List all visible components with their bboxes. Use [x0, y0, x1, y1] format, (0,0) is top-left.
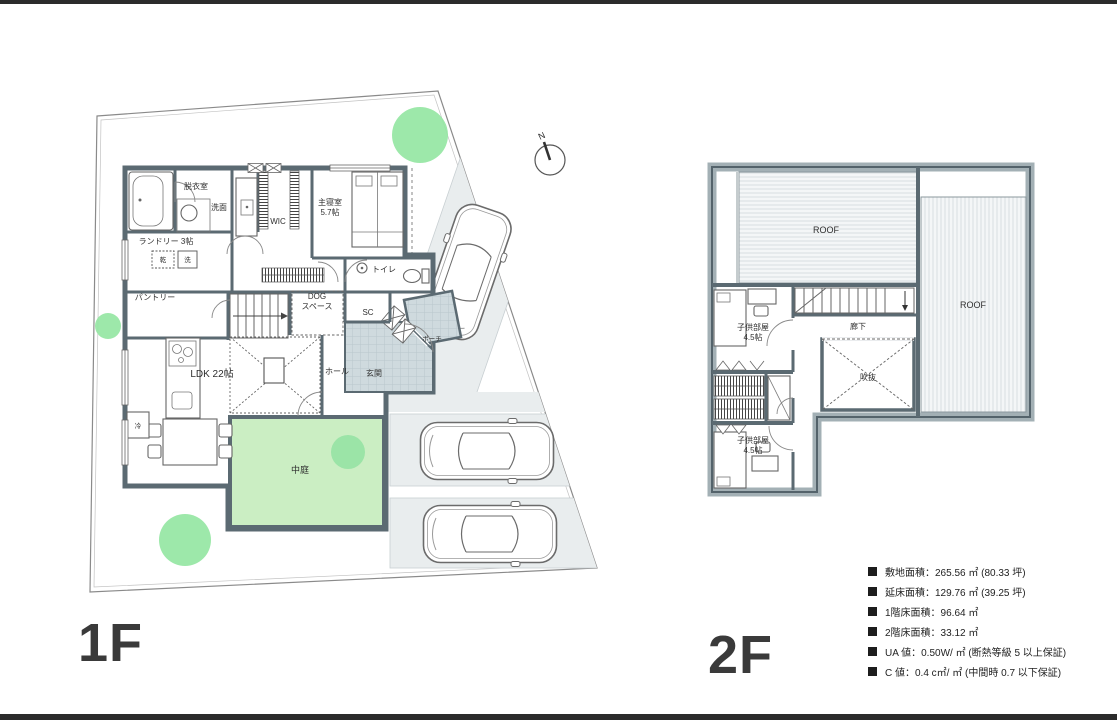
room-label-dog-2: スペース	[301, 302, 332, 311]
room-label-roof-left: ROOF	[813, 225, 840, 235]
spec-item: 1階床面積：96.64 ㎡	[868, 601, 1066, 621]
room-label-pantry: パントリー	[135, 293, 175, 302]
floorplan-page: 脱衣室 洗面 WIC 主寝室 5.7帖 ランドリー 3帖 乾 洗 パントリー D…	[0, 0, 1117, 720]
spec-item: C 値：0.4 c㎡/ ㎡ (中間時 0.7 以下保証)	[868, 661, 1066, 681]
wic-hanger-icon	[290, 171, 299, 229]
tree-icon	[392, 107, 448, 163]
washer-icon	[181, 205, 197, 221]
room-label-wic: WIC	[270, 217, 286, 226]
room-label-porch: ポーチ	[422, 335, 442, 343]
room-label-kids1: 子供部屋	[737, 322, 769, 332]
vanity-icon	[236, 178, 257, 236]
room-label-kids2-size: 4.5帖	[743, 445, 762, 455]
room-label-corridor: 廊下	[850, 321, 866, 331]
desk-icon	[748, 289, 776, 304]
room-label-hall: ホール	[325, 367, 349, 376]
room-label-laundry: ランドリー 3帖	[139, 236, 194, 246]
floor2-plan: ROOF ROOF 子供部屋 4.5帖 廊下 吹抜 子供部屋 4.5帖	[712, 167, 1030, 492]
room-label-dog-1: DOG	[308, 292, 326, 301]
room-label-courtyard: 中庭	[291, 464, 309, 475]
car-icon	[421, 419, 554, 484]
label-washer: 洗	[184, 255, 191, 264]
room-label-master-bedroom: 主寝室	[318, 197, 342, 207]
desk-icon	[752, 456, 778, 471]
tree-icon	[159, 514, 211, 566]
spec-item: 延床面積：129.76 ㎡ (39.25 坪)	[868, 581, 1066, 601]
tree-icon	[95, 313, 121, 339]
room-label-washroom: 洗面	[211, 202, 227, 212]
spec-item: 2階床面積：33.12 ㎡	[868, 621, 1066, 641]
room-label-void: 吹抜	[860, 372, 876, 382]
square-bullet-icon	[868, 667, 877, 676]
car-icon	[424, 502, 557, 567]
label-dryer: 乾	[160, 255, 167, 264]
bathtub-icon	[129, 172, 173, 230]
square-bullet-icon	[868, 587, 877, 596]
room-label-dressing: 脱衣室	[184, 181, 208, 191]
square-bullet-icon	[868, 607, 877, 616]
room-label-entrance: 玄関	[366, 368, 382, 378]
north-compass-icon: N	[535, 130, 565, 175]
square-bullet-icon	[868, 627, 877, 636]
floor2-title: 2F	[708, 624, 773, 686]
bed-icon	[714, 290, 746, 346]
spec-item: 敷地面積：265.56 ㎡ (80.33 坪)	[868, 561, 1066, 581]
tree-icon	[331, 435, 365, 469]
spec-list: 敷地面積：265.56 ㎡ (80.33 坪) 延床面積：129.76 ㎡ (3…	[868, 561, 1066, 681]
room-label-roof-right: ROOF	[960, 300, 987, 310]
wic-hanger-icon	[259, 171, 268, 229]
svg-text:N: N	[537, 130, 547, 142]
floor1-title: 1F	[78, 612, 143, 674]
floor1-plan: 脱衣室 洗面 WIC 主寝室 5.7帖 ランドリー 3帖 乾 洗 パントリー D…	[90, 91, 606, 592]
room-label-kids2: 子供部屋	[737, 435, 769, 445]
room-label-kids1-size: 4.5帖	[743, 332, 762, 342]
room-label-ldk: LDK 22帖	[190, 367, 233, 380]
square-bullet-icon	[868, 567, 877, 576]
label-fridge: 冷	[135, 421, 142, 430]
room-label-sc: SC	[362, 308, 373, 317]
spec-item: UA 値：0.50W/ ㎡ (断熱等級 5 以上保証)	[868, 641, 1066, 661]
room-label-toilet: トイレ	[372, 265, 396, 274]
square-bullet-icon	[868, 647, 877, 656]
bed-icon	[352, 172, 403, 247]
room-label-master-bedroom-size: 5.7帖	[320, 207, 339, 217]
